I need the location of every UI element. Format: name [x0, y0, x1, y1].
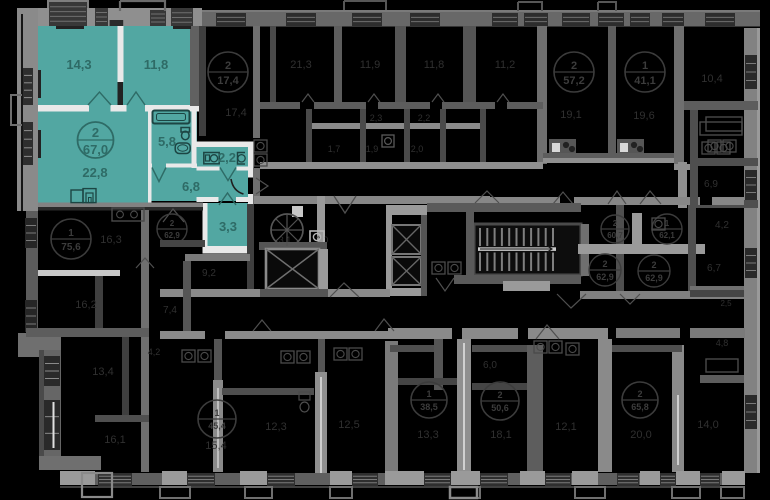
svg-text:62,9: 62,9	[164, 231, 180, 240]
svg-text:12,5: 12,5	[338, 419, 359, 431]
svg-text:1: 1	[214, 408, 219, 418]
svg-text:13,3: 13,3	[417, 429, 438, 441]
svg-text:6,0: 6,0	[483, 360, 497, 371]
svg-text:1: 1	[68, 228, 74, 239]
svg-text:57,2: 57,2	[563, 75, 584, 87]
svg-text:1,9: 1,9	[366, 144, 379, 154]
svg-text:2: 2	[613, 219, 618, 228]
svg-text:5,8: 5,8	[158, 134, 176, 149]
svg-text:6,8: 6,8	[182, 179, 200, 194]
svg-text:41,1: 41,1	[634, 75, 655, 87]
svg-text:14,0: 14,0	[697, 419, 718, 431]
svg-text:19,1: 19,1	[560, 109, 581, 121]
svg-text:2: 2	[497, 390, 502, 400]
svg-text:2,0: 2,0	[411, 144, 424, 154]
svg-text:45,4: 45,4	[208, 421, 226, 431]
svg-text:2,2: 2,2	[418, 113, 431, 123]
svg-text:62,9: 62,9	[596, 272, 614, 282]
svg-text:38,5: 38,5	[420, 402, 438, 412]
svg-text:4,8: 4,8	[716, 338, 729, 348]
svg-text:17,4: 17,4	[225, 107, 246, 119]
svg-text:67,0: 67,0	[83, 142, 108, 157]
svg-text:6,9: 6,9	[704, 179, 718, 190]
svg-text:16,3: 16,3	[100, 234, 121, 246]
svg-text:4,2: 4,2	[148, 347, 161, 357]
svg-text:65,8: 65,8	[631, 402, 649, 412]
svg-text:11,8: 11,8	[424, 59, 445, 71]
svg-text:16,1: 16,1	[104, 434, 125, 446]
svg-text:3,3: 3,3	[219, 219, 237, 234]
svg-text:13,4: 13,4	[92, 366, 113, 378]
svg-text:19,6: 19,6	[633, 110, 654, 122]
svg-text:12,3: 12,3	[265, 421, 286, 433]
svg-text:75,6: 75,6	[61, 242, 81, 253]
svg-text:16,2: 16,2	[75, 299, 96, 311]
svg-text:62,1: 62,1	[659, 231, 675, 240]
svg-text:2: 2	[92, 125, 99, 140]
svg-text:1: 1	[426, 389, 431, 399]
svg-text:12,1: 12,1	[555, 421, 576, 433]
svg-text:1,7: 1,7	[328, 144, 341, 154]
svg-text:15,4: 15,4	[205, 440, 226, 452]
svg-text:17,4: 17,4	[217, 75, 239, 87]
svg-text:11,9: 11,9	[360, 59, 381, 71]
svg-text:11,2: 11,2	[495, 59, 516, 71]
svg-text:1: 1	[642, 60, 648, 72]
svg-text:60,7: 60,7	[607, 231, 623, 240]
svg-text:14,3: 14,3	[66, 57, 91, 72]
svg-text:2: 2	[225, 60, 231, 72]
svg-text:20,0: 20,0	[630, 429, 651, 441]
svg-text:62,9: 62,9	[645, 273, 663, 283]
svg-text:2: 2	[602, 259, 607, 269]
svg-text:9,2: 9,2	[202, 268, 216, 279]
svg-text:6,7: 6,7	[707, 263, 721, 274]
svg-text:2: 2	[571, 60, 577, 72]
svg-text:2: 2	[637, 389, 642, 399]
svg-text:2: 2	[651, 260, 656, 270]
svg-text:11,8: 11,8	[144, 57, 169, 72]
svg-text:21,3: 21,3	[290, 59, 311, 71]
svg-text:2,5: 2,5	[720, 299, 732, 308]
svg-text:18,1: 18,1	[490, 429, 511, 441]
svg-text:22,8: 22,8	[82, 165, 107, 180]
svg-text:50,6: 50,6	[491, 403, 509, 413]
svg-text:2,2: 2,2	[218, 150, 236, 165]
svg-text:4,2: 4,2	[715, 220, 729, 231]
svg-text:2,3: 2,3	[370, 113, 383, 123]
svg-text:10,4: 10,4	[701, 73, 722, 85]
svg-text:2: 2	[170, 219, 175, 228]
svg-text:7,4: 7,4	[163, 305, 177, 316]
